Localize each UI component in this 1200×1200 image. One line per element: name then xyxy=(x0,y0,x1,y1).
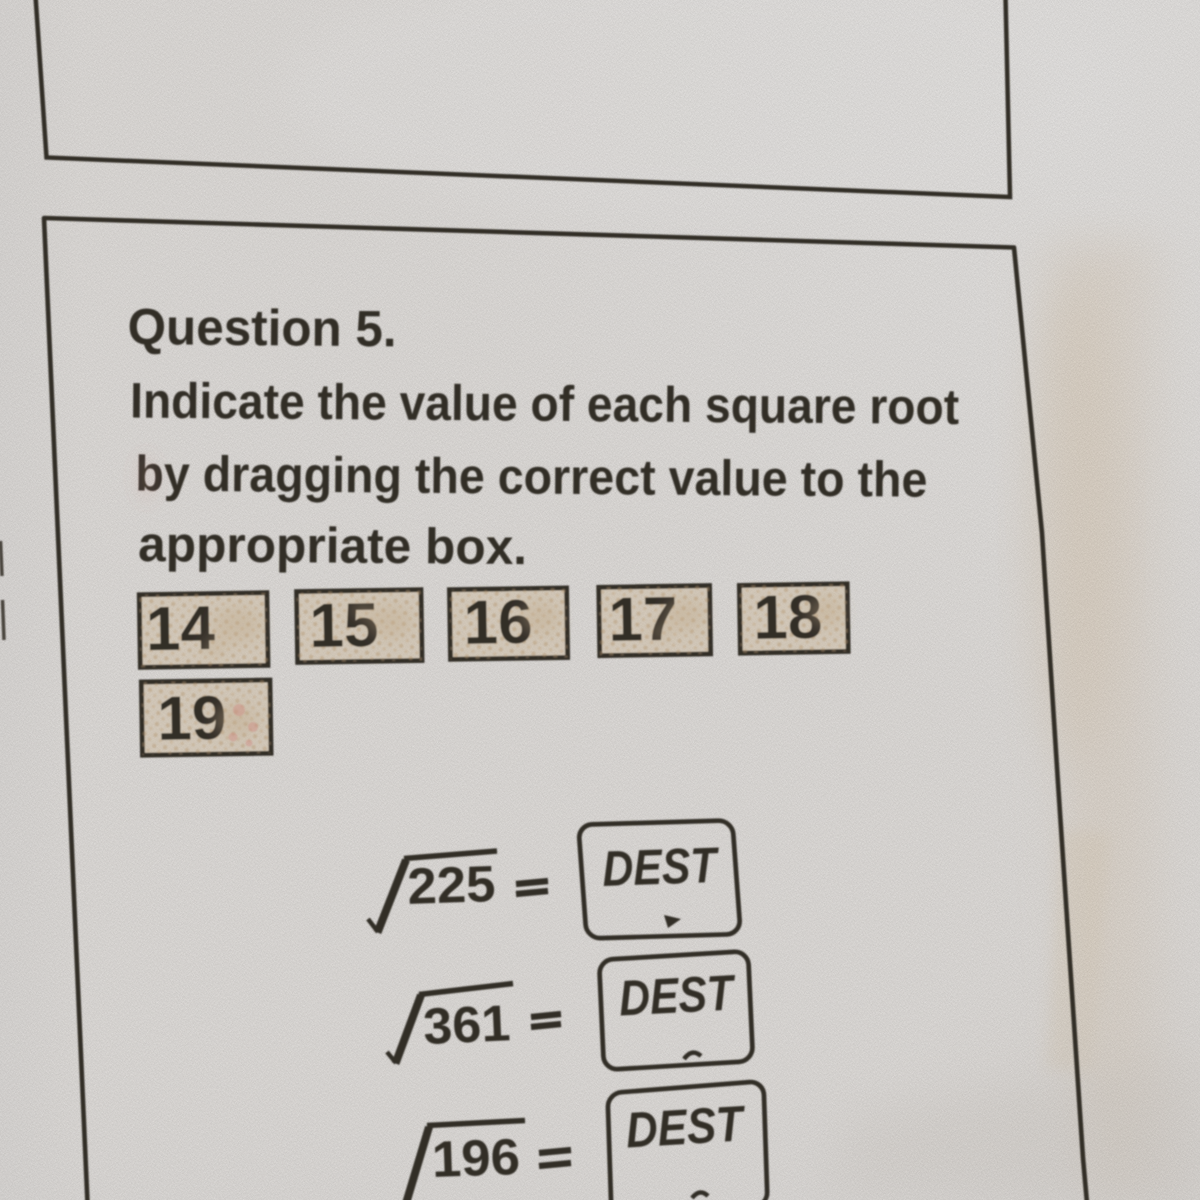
svg-text:Indicate the value of each squ: Indicate the value of each square root xyxy=(130,373,960,436)
svg-text:361: 361 xyxy=(422,994,511,1055)
svg-text:225: 225 xyxy=(406,855,496,915)
svg-text:by dragging the correct value: by dragging the correct value to the xyxy=(135,446,927,508)
svg-text:15: 15 xyxy=(309,591,379,661)
svg-text:DEST: DEST xyxy=(601,837,721,897)
svg-text:DEST: DEST xyxy=(624,1095,748,1158)
svg-text:DEST: DEST xyxy=(618,964,739,1026)
svg-text:196: 196 xyxy=(431,1128,521,1188)
svg-text:Question 5.: Question 5. xyxy=(127,298,396,357)
svg-text:appropriate box.: appropriate box. xyxy=(138,516,527,575)
